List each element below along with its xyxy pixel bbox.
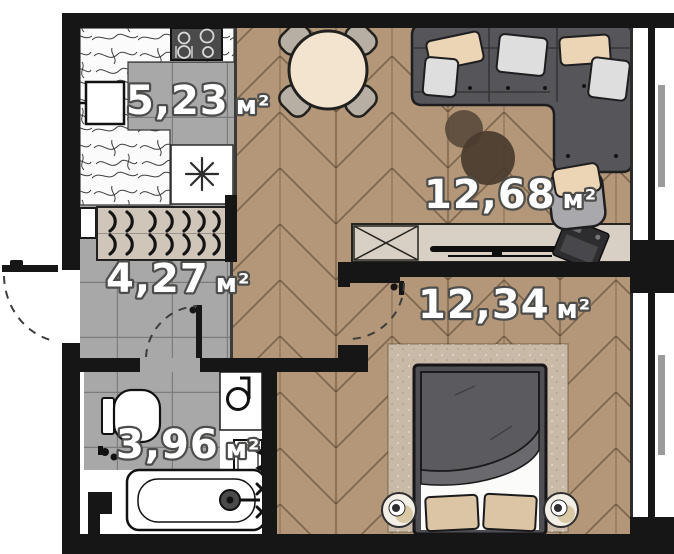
sofa-pillow xyxy=(588,57,631,101)
bed-pillow xyxy=(425,495,479,532)
tv-icon xyxy=(430,246,564,252)
wall-bathroom-pier xyxy=(88,514,100,534)
living-room-window xyxy=(630,28,674,240)
wall-left-lower xyxy=(62,343,80,554)
wall-bathroom-top-left xyxy=(80,358,140,372)
stove-icon xyxy=(171,28,222,60)
floor-plan: 5,23м² 4,27м² 12,68м² 12,34м² 3,96м² xyxy=(0,0,674,554)
bathtub-icon xyxy=(127,470,267,530)
wall-top xyxy=(62,13,674,28)
wall-bottom-right-corner xyxy=(630,517,674,554)
hallway xyxy=(80,207,228,260)
night-lamp-icon xyxy=(544,493,578,527)
bedroom xyxy=(382,344,578,534)
wall-left-upper xyxy=(62,13,80,270)
entrance-door xyxy=(2,260,58,341)
night-lamp-icon xyxy=(382,493,416,527)
dining-set xyxy=(275,19,381,121)
wall-window-divider xyxy=(630,240,674,293)
wall-bathroom-right xyxy=(262,358,277,534)
washing-machine-icon xyxy=(220,372,262,430)
bed xyxy=(414,365,546,534)
sofa-pillow xyxy=(496,34,548,77)
floor-plan-drawing: 5,23м² 4,27м² 12,68м² 12,34м² 3,96м² xyxy=(0,0,674,554)
wall-bathroom-pier xyxy=(88,492,112,514)
wall-wardrobe-stub xyxy=(225,195,237,262)
dining-table xyxy=(289,31,367,109)
kitchen-sink-icon xyxy=(171,145,233,204)
bed-pillow xyxy=(483,494,537,532)
bathroom-door-threshold xyxy=(140,358,200,372)
entrance-door-swing xyxy=(4,276,54,341)
bedroom-window xyxy=(630,293,674,517)
wall-bottom xyxy=(62,534,674,554)
sofa-pillow xyxy=(422,57,458,98)
wardrobe xyxy=(97,207,228,260)
wall-bedroom-divider xyxy=(338,262,634,277)
hallway-niche xyxy=(80,208,96,238)
